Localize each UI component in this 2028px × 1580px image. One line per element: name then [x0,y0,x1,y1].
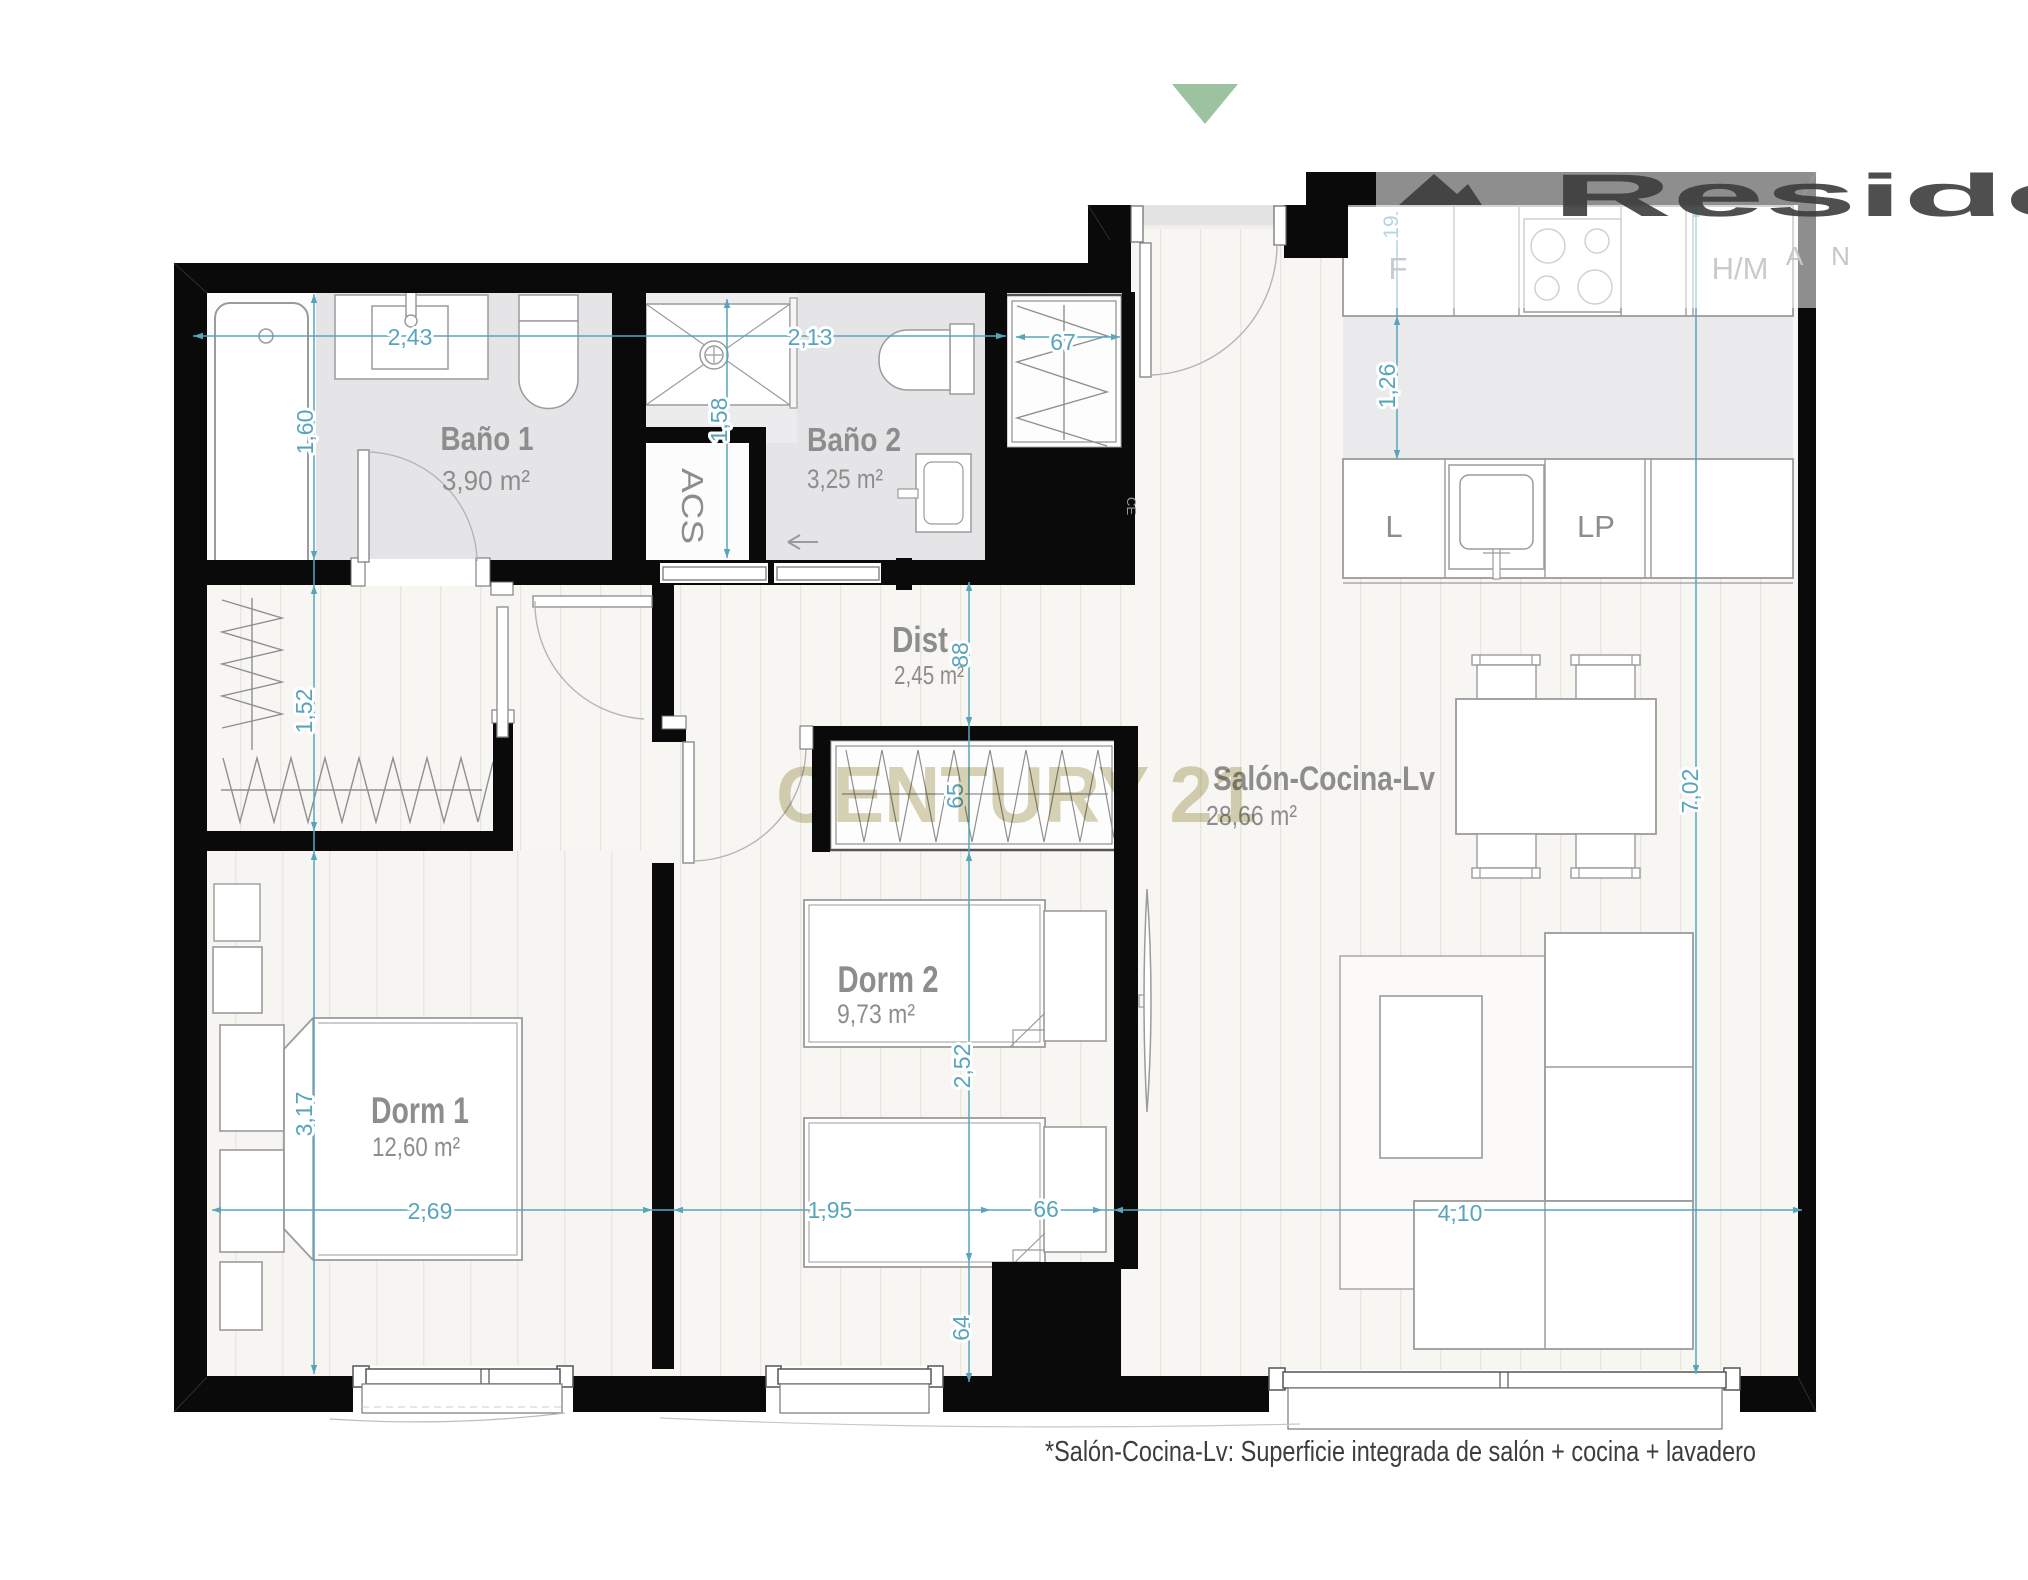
svg-text:3,90 m²: 3,90 m² [442,465,530,496]
svg-text:3,25 m²: 3,25 m² [807,464,883,494]
svg-text:2,52: 2,52 [949,1044,975,1089]
svg-text:1,52: 1,52 [291,689,317,734]
svg-text:64: 64 [948,1315,974,1341]
svg-text:L: L [1385,509,1402,544]
svg-text:Baño 1: Baño 1 [441,420,534,457]
svg-text:Reside: Reside [1552,162,2028,229]
svg-text:2,13: 2,13 [788,324,833,350]
svg-text:CENTURY 21: CENTURY 21 [776,750,1256,839]
svg-text:2,45 m²: 2,45 m² [894,660,964,690]
svg-text:2,43: 2,43 [388,324,433,350]
svg-text:Dorm 2: Dorm 2 [838,959,939,1000]
svg-text:Dist: Dist [892,619,948,660]
svg-text:1,60: 1,60 [292,410,318,455]
svg-text:67: 67 [1050,329,1076,355]
svg-text:CE: CE [1124,497,1139,515]
svg-text:A N: A N [1786,241,1861,271]
svg-text:Baño 2: Baño 2 [807,421,901,458]
svg-text:9,73 m²: 9,73 m² [837,999,915,1029]
svg-text:12,60 m²: 12,60 m² [372,1132,460,1162]
svg-text:2,69: 2,69 [408,1198,453,1224]
svg-text:*Salón-Cocina-Lv: Superficie i: *Salón-Cocina-Lv: Superficie integrada d… [1045,1436,1756,1468]
svg-text:LP: LP [1577,509,1615,544]
svg-text:1,95: 1,95 [808,1197,853,1223]
svg-text:1,58: 1,58 [706,398,732,443]
svg-text:ACS: ACS [675,468,710,544]
svg-text:3,17: 3,17 [291,1092,317,1137]
svg-text:4,10: 4,10 [1438,1200,1483,1226]
svg-text:1,26: 1,26 [1374,364,1400,409]
svg-text:Dorm 1: Dorm 1 [371,1090,469,1131]
svg-text:66: 66 [1033,1196,1059,1222]
svg-text:7,02: 7,02 [1677,769,1703,814]
